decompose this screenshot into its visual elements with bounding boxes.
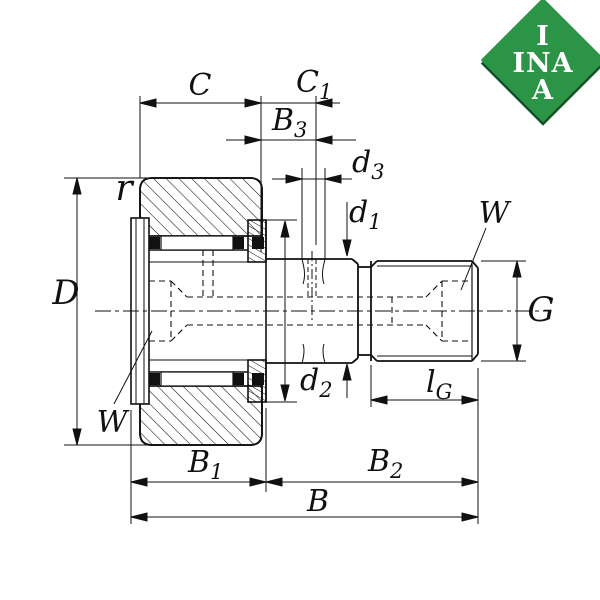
dim-label-G: G — [527, 290, 554, 330]
dim-B — [131, 513, 478, 521]
dim-label-B3: B3 — [271, 103, 307, 142]
dim-label-r: r — [115, 168, 134, 209]
dim-label-B1: B1 — [187, 445, 223, 484]
outer-ring-hatch-top — [140, 178, 262, 236]
dim-label-W-left: W — [97, 405, 130, 440]
dim-label-d3: d3 — [352, 145, 385, 184]
dim-label-B2: B2 — [367, 444, 403, 483]
dim-d3 — [272, 168, 352, 260]
dim-label-d2: d2 — [300, 363, 333, 402]
dimension-labels: C C1 B3 d3 d1 r D W G d2 lG W B1 B2 B — [51, 65, 554, 519]
outer-ring-hatch-bottom — [140, 386, 262, 445]
dim-label-W-right: W — [479, 196, 512, 231]
ina-logo: I INA A — [481, 0, 600, 126]
dim-label-C: C — [189, 68, 212, 103]
w-right-leader — [461, 228, 486, 290]
technical-drawing-page: { "title": "Cam follower bearing cross-s… — [0, 0, 600, 600]
dim-label-lG: lG — [426, 365, 452, 404]
bearing-drawing: C C1 B3 d3 d1 r D W G d2 lG W B1 B2 B I … — [0, 0, 600, 600]
ina-logo-line3: A — [531, 75, 554, 106]
dim-label-D: D — [51, 273, 79, 313]
dim-label-C1: C1 — [296, 65, 332, 104]
dim-label-d1: d1 — [349, 195, 382, 234]
pilot-break-lines — [302, 251, 325, 363]
dim-label-B: B — [306, 484, 329, 519]
